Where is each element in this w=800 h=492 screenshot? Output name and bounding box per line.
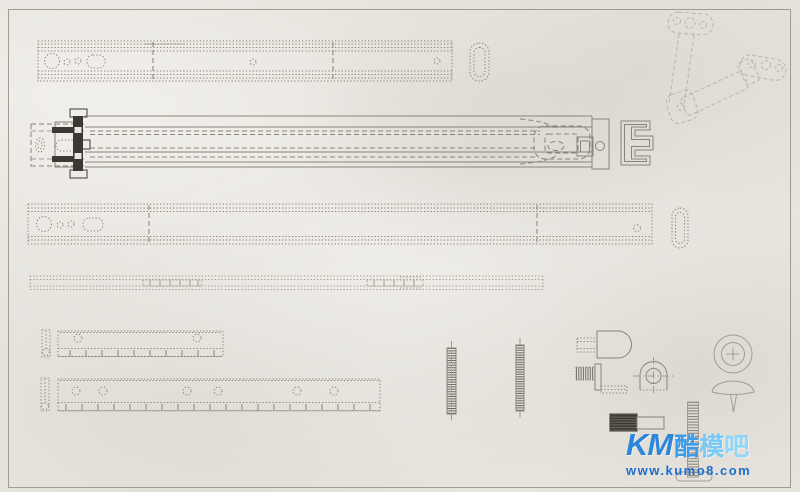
round-head-pin [577, 331, 632, 358]
watermark-seg-0: KM [626, 429, 672, 460]
l-bracket-stud [576, 364, 627, 393]
rail-cross-section [621, 121, 653, 165]
watermark-seg-3: 吧 [724, 435, 749, 460]
lever-linkage [664, 11, 787, 125]
lower-slide-rail-top-view [28, 204, 652, 244]
bracket-plate-long [41, 378, 380, 411]
washer-top-view [714, 335, 752, 373]
watermark-seg-1: 酷 [674, 435, 699, 460]
threaded-rod-right [516, 338, 524, 418]
watermark-url: www.kumo8.com [626, 464, 751, 477]
upper-slide-rail-top-view [38, 41, 452, 81]
cad-drawing [0, 0, 800, 492]
push-pin [712, 381, 754, 412]
lower-rail-end-view [672, 208, 688, 248]
upper-rail-end-view [470, 43, 489, 81]
bracket-plate-short [42, 330, 223, 357]
ball-retainer-strip [30, 276, 543, 290]
watermark-title: KM 酷 模 吧 [626, 429, 751, 460]
watermark-seg-2: 模 [699, 435, 724, 460]
drawing-canvas: KM 酷 模 吧 www.kumo8.com [0, 0, 800, 492]
threaded-rod-left [447, 341, 456, 421]
round-top-bracket [633, 357, 674, 394]
mounting-bracket-section [52, 109, 90, 178]
slide-assembly-side-view [31, 109, 653, 178]
watermark: KM 酷 模 吧 www.kumo8.com [626, 429, 751, 477]
